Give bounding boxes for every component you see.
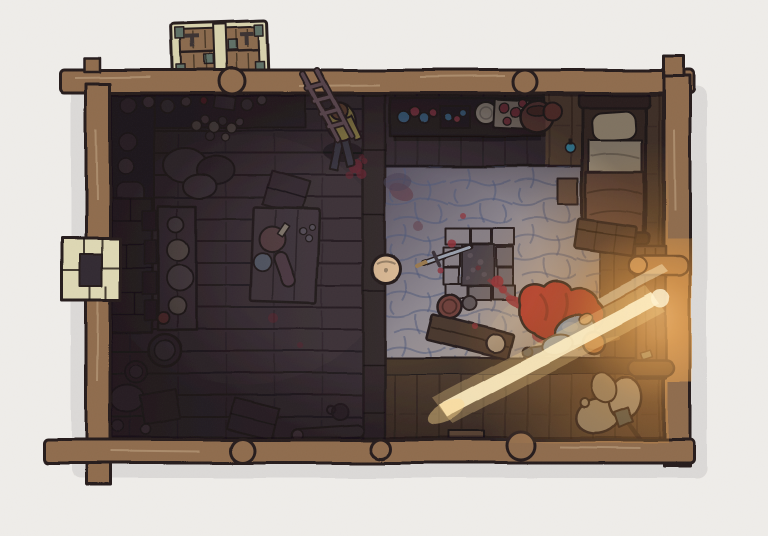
cabin-battle-map [0,0,768,536]
paper-grain [0,0,768,536]
battle-map-image [0,0,768,536]
